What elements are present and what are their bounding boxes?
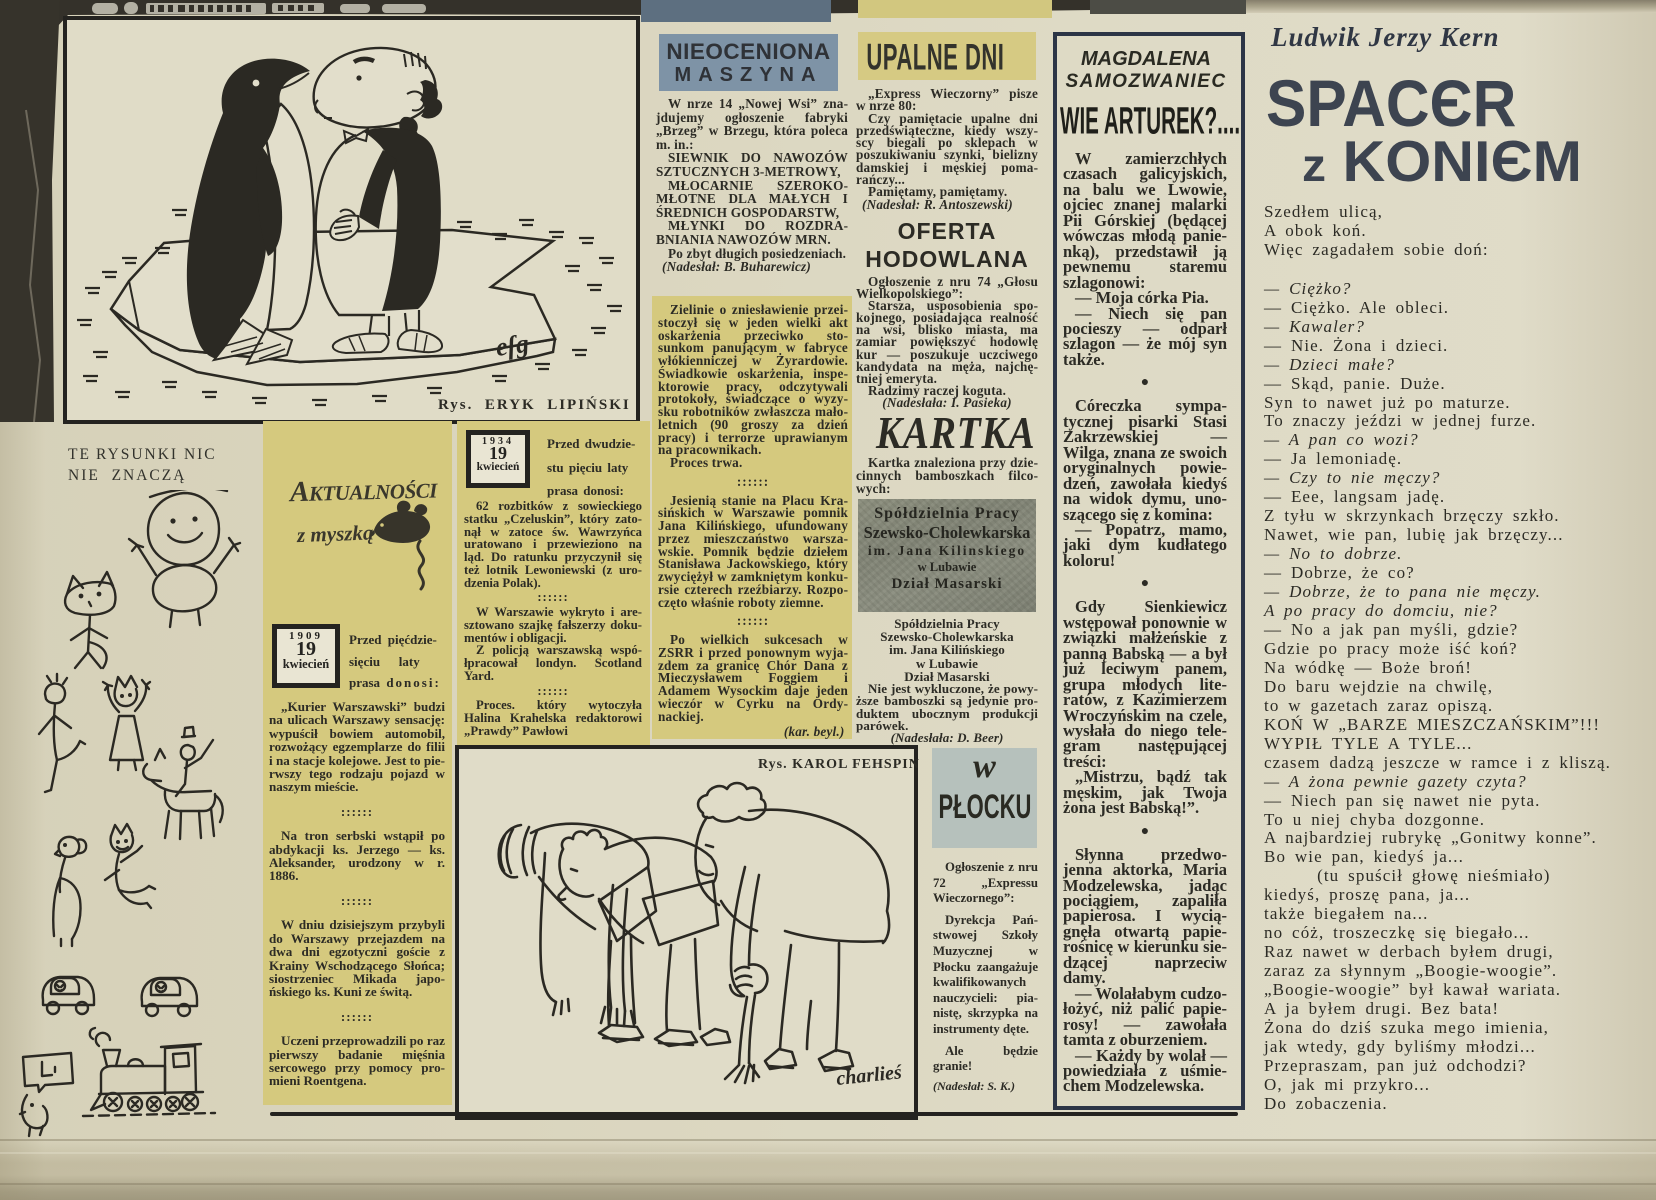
svg-text:charlieś: charlieś — [835, 1061, 904, 1090]
svg-text:eſg: eſg — [494, 329, 531, 362]
